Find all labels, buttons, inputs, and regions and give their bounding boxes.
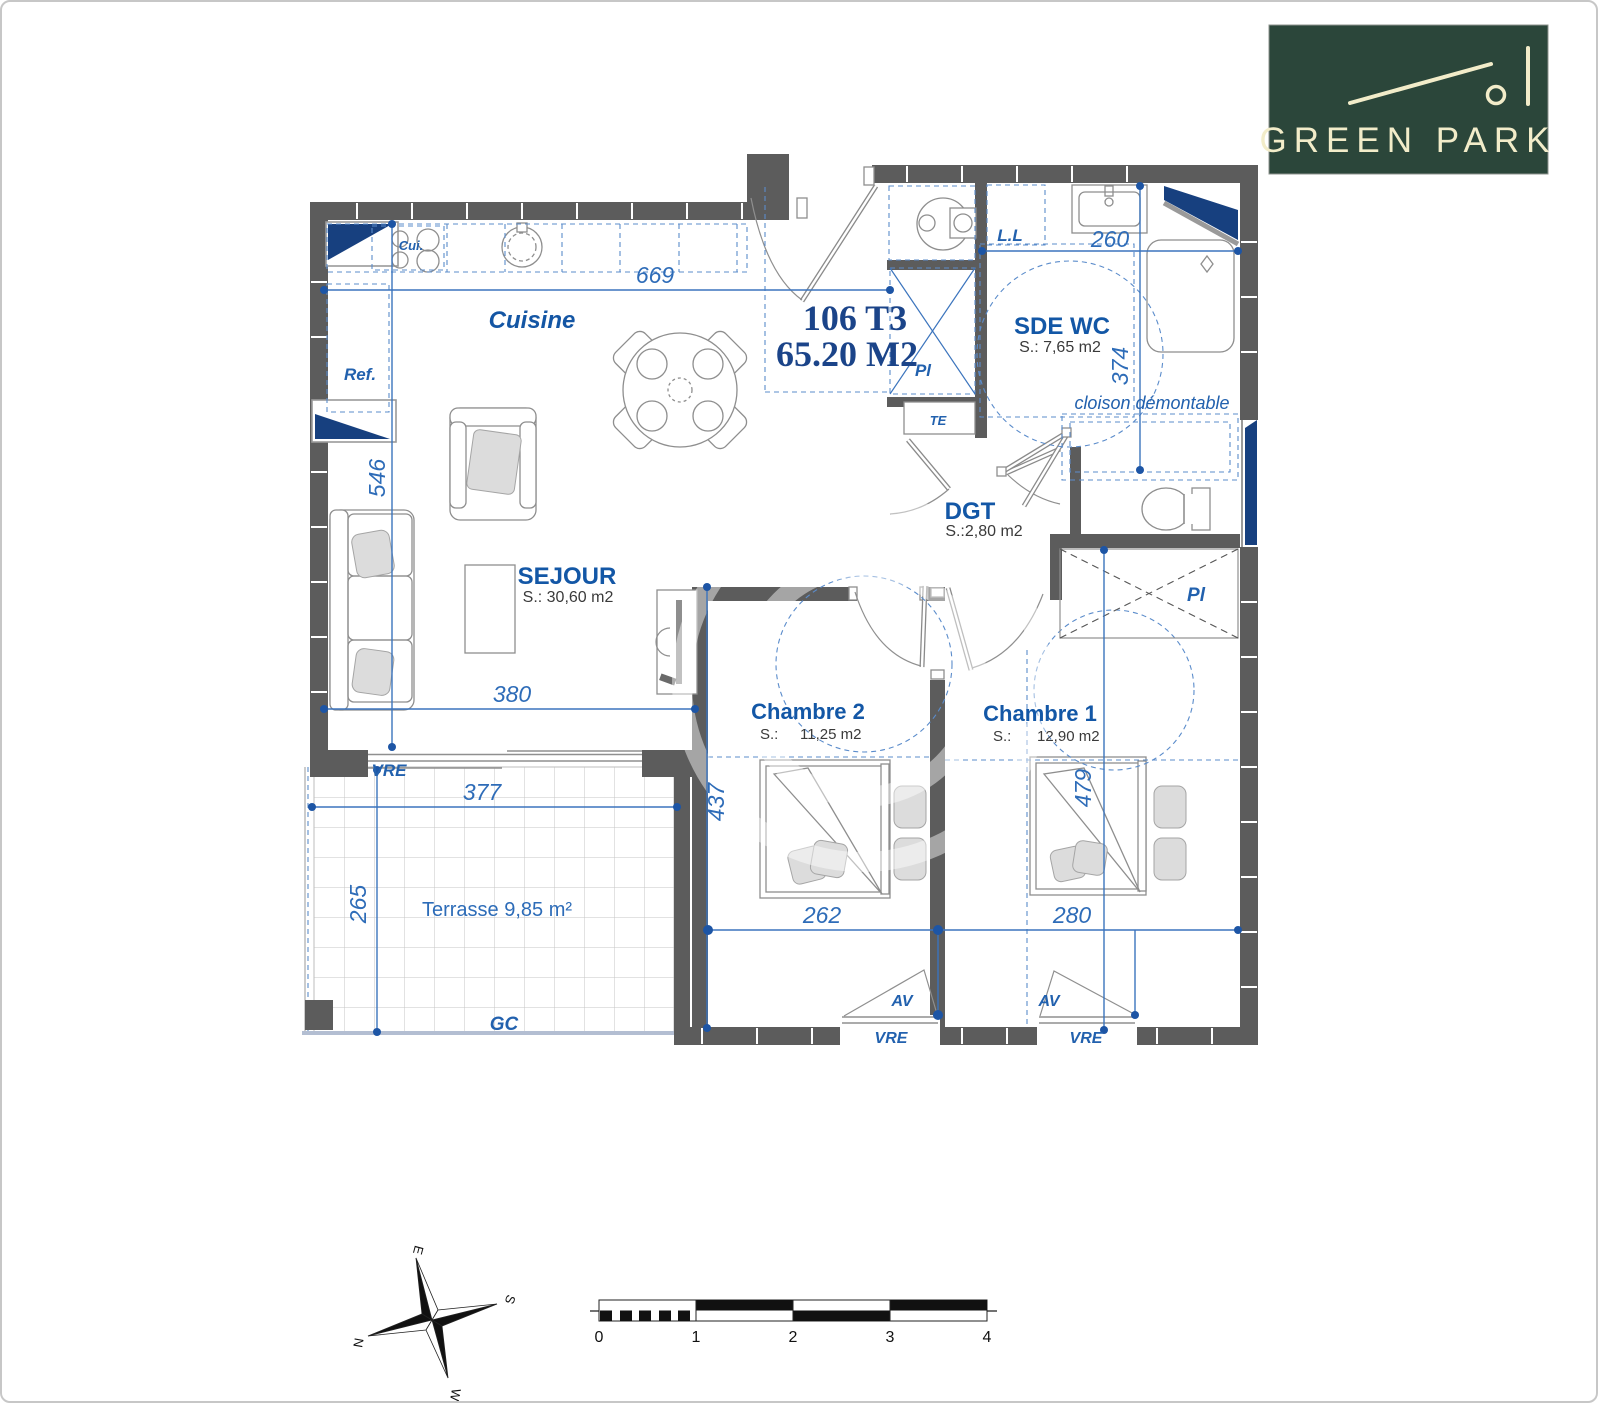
- closet-dressing: [1060, 549, 1238, 638]
- wall-terrace-right: [674, 777, 690, 1034]
- area-sde-wc: S.: 7,65 m2: [1019, 339, 1101, 356]
- toilet-icon: [1142, 488, 1210, 530]
- turning-circle-chambre1: [1034, 610, 1194, 770]
- scale-tick-0: 0: [595, 1329, 604, 1346]
- area-prefix-chambre1: S.:: [993, 728, 1011, 745]
- label-ll: L.L: [997, 226, 1023, 245]
- door-chambre2: [849, 586, 928, 667]
- dim-669: 669: [636, 262, 675, 288]
- wall-top-kitchen: [310, 202, 762, 220]
- room-label-dgt: DGT: [945, 498, 996, 525]
- floor-plan-page: 106 T3 65.20 M2 Cuisine Cui. Ref. SEJOUR…: [0, 0, 1598, 1403]
- logo-brand-text: GREEN PARK: [1260, 121, 1557, 160]
- fridge-outline: [327, 284, 389, 412]
- wall-right: [1240, 183, 1258, 1045]
- plan-title-line2: 65.20 M2: [776, 334, 918, 374]
- wall-entry-column: [975, 183, 987, 438]
- room-label-terrasse: Terrasse 9,85 m²: [422, 899, 572, 921]
- cloison-outline-outer: [1062, 414, 1238, 480]
- dining-table: [610, 328, 750, 452]
- dim-374: 374: [1107, 347, 1133, 385]
- label-av-chambre2: AV: [890, 993, 913, 1010]
- floor-plan-svg: 106 T3 65.20 M2 Cuisine Cui. Ref. SEJOUR…: [2, 2, 1596, 1401]
- label-pl-entry: Pl: [915, 361, 932, 380]
- compass-rose-icon: E S N W: [350, 1244, 519, 1401]
- scale-tick-1: 1: [692, 1329, 701, 1346]
- dim-262: 262: [802, 902, 842, 928]
- bed-chambre1: [1030, 757, 1186, 895]
- wall-wc-left: [1070, 447, 1081, 537]
- area-chambre2: 11,25 m2: [800, 726, 861, 743]
- terrace-corner-block: [305, 1000, 333, 1030]
- window-sejour-vre: [368, 751, 642, 768]
- scale-bar: 0 1 2 3 4: [590, 1300, 997, 1346]
- area-chambre1: 12,90 m2: [1037, 728, 1100, 745]
- compass-north: N: [350, 1337, 366, 1349]
- dim-437: 437: [703, 782, 729, 822]
- label-ref: Ref.: [344, 365, 376, 384]
- nightstand: [1154, 838, 1186, 880]
- label-vre-sejour: VRE: [372, 761, 408, 780]
- label-vre-chambre2: VRE: [875, 1030, 909, 1047]
- area-prefix-chambre2: S.:: [760, 726, 778, 743]
- dim-380: 380: [493, 681, 532, 707]
- room-label-sde-wc: SDE WC: [1014, 313, 1110, 340]
- room-label-chambre1: Chambre 1: [983, 701, 1097, 726]
- logo-green-park: GREEN PARK: [1260, 25, 1557, 174]
- label-pl-dressing: Pl: [1187, 585, 1206, 606]
- label-cloison: cloison démontable: [1074, 393, 1229, 413]
- label-gc: GC: [490, 1014, 519, 1035]
- shower-icon: [1147, 240, 1234, 352]
- dim-479: 479: [1070, 769, 1096, 808]
- armchair-icon: [450, 408, 536, 520]
- plan-title-line1: 106 T3: [803, 298, 907, 338]
- room-label-sejour: SEJOUR: [518, 563, 617, 590]
- washing-machine-icon: [917, 198, 976, 250]
- scale-tick-4: 4: [983, 1329, 992, 1346]
- cloison-outline-inner: [1070, 422, 1230, 472]
- label-av-chambre1: AV: [1037, 993, 1060, 1010]
- scale-tick-3: 3: [886, 1329, 895, 1346]
- label-cui: Cui.: [399, 238, 424, 253]
- dim-377: 377: [463, 779, 503, 805]
- room-label-chambre2: Chambre 2: [751, 699, 865, 724]
- kitchen-sink-icon: [502, 223, 542, 267]
- wall-bottom: [674, 1027, 1258, 1045]
- wall-sejour-bottom-left: [310, 750, 368, 777]
- nightstand: [1154, 786, 1186, 828]
- room-label-cuisine: Cuisine: [489, 307, 576, 334]
- window-sde-corner: [1164, 186, 1238, 244]
- window-sejour-left: [312, 400, 396, 442]
- label-vre-chambre1: VRE: [1070, 1030, 1104, 1047]
- window-kitchen-corner: [326, 222, 398, 266]
- area-dgt: S.:2,80 m2: [945, 523, 1022, 540]
- compass-east: E: [410, 1244, 427, 1257]
- window-wc-right: [1240, 420, 1258, 547]
- label-te: TE: [930, 413, 947, 428]
- compass-south: S: [502, 1293, 519, 1307]
- sofa-icon: [330, 510, 414, 710]
- coffee-table-icon: [465, 565, 515, 653]
- area-sejour: S.: 30,60 m2: [523, 589, 614, 606]
- dim-280: 280: [1052, 902, 1092, 928]
- scale-tick-2: 2: [789, 1329, 798, 1346]
- dim-260: 260: [1090, 226, 1130, 252]
- compass-west: W: [447, 1387, 464, 1401]
- dim-265: 265: [345, 885, 371, 925]
- dim-546: 546: [364, 459, 390, 498]
